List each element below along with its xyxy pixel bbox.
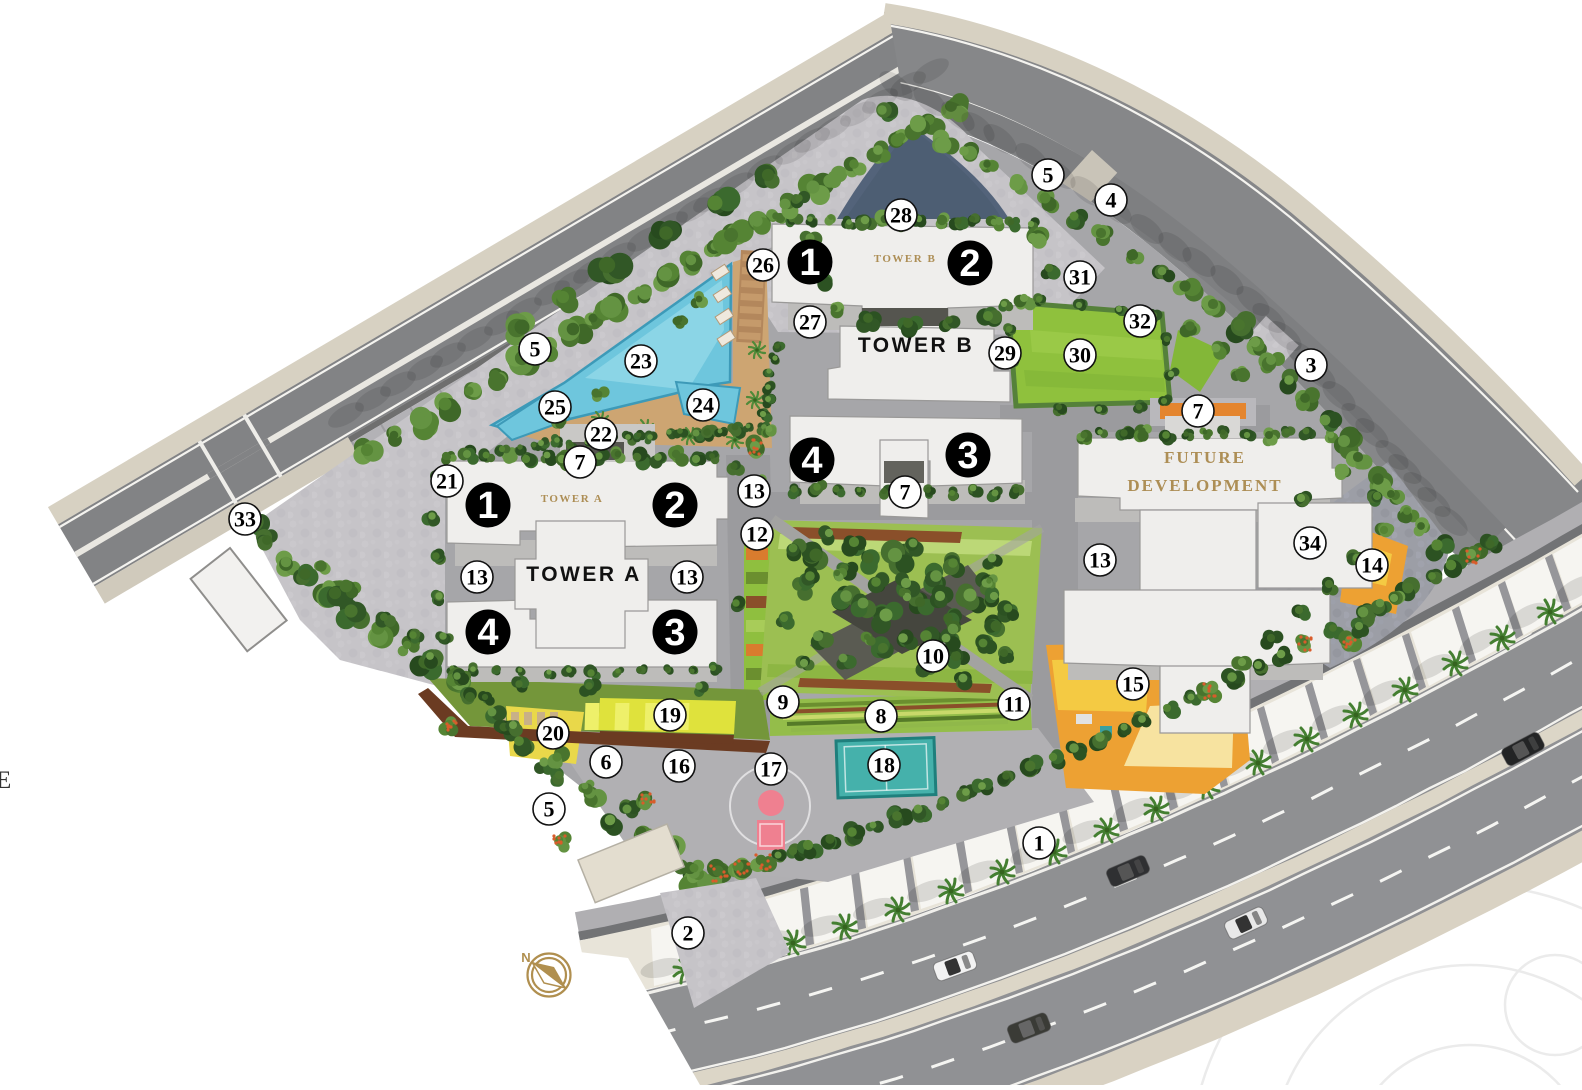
svg-text:17: 17 xyxy=(760,757,782,782)
svg-text:1: 1 xyxy=(477,485,498,527)
svg-text:1: 1 xyxy=(799,242,820,284)
svg-text:14: 14 xyxy=(1361,553,1383,578)
svg-text:4: 4 xyxy=(801,440,822,482)
svg-text:16: 16 xyxy=(668,754,690,779)
svg-text:TOWER B: TOWER B xyxy=(858,334,974,357)
svg-text:7: 7 xyxy=(1193,399,1204,424)
svg-text:TOWER B: TOWER B xyxy=(874,253,937,265)
svg-text:33: 33 xyxy=(234,507,256,532)
svg-text:28: 28 xyxy=(890,203,912,228)
svg-text:11: 11 xyxy=(1004,692,1025,717)
svg-text:18: 18 xyxy=(873,753,895,778)
svg-text:2: 2 xyxy=(959,243,980,285)
svg-text:6: 6 xyxy=(601,750,612,775)
svg-text:30: 30 xyxy=(1069,343,1091,368)
svg-text:29: 29 xyxy=(994,341,1016,366)
svg-text:31: 31 xyxy=(1069,265,1091,290)
svg-text:3: 3 xyxy=(664,612,685,654)
svg-text:32: 32 xyxy=(1129,309,1151,334)
svg-text:FUTURE: FUTURE xyxy=(1164,448,1246,467)
svg-text:24: 24 xyxy=(692,393,714,418)
svg-text:13: 13 xyxy=(466,565,488,590)
svg-text:9: 9 xyxy=(778,690,789,715)
svg-text:E: E xyxy=(0,767,11,794)
svg-text:7: 7 xyxy=(900,480,911,505)
svg-text:5: 5 xyxy=(1043,163,1054,188)
svg-text:23: 23 xyxy=(630,349,652,374)
svg-text:5: 5 xyxy=(544,797,555,822)
svg-text:27: 27 xyxy=(799,310,821,335)
svg-text:N: N xyxy=(521,950,530,965)
svg-text:26: 26 xyxy=(752,253,774,278)
svg-text:12: 12 xyxy=(746,522,768,547)
svg-text:22: 22 xyxy=(590,422,612,447)
svg-text:20: 20 xyxy=(542,721,564,746)
svg-text:13: 13 xyxy=(676,565,698,590)
svg-text:5: 5 xyxy=(530,337,541,362)
svg-text:10: 10 xyxy=(922,644,944,669)
svg-text:13: 13 xyxy=(1089,548,1111,573)
svg-text:1: 1 xyxy=(1034,831,1045,856)
svg-text:34: 34 xyxy=(1299,531,1321,556)
svg-text:19: 19 xyxy=(659,703,681,728)
svg-text:4: 4 xyxy=(477,612,498,654)
svg-text:2: 2 xyxy=(683,921,694,946)
svg-text:2: 2 xyxy=(664,485,685,527)
svg-text:21: 21 xyxy=(436,469,458,494)
svg-text:8: 8 xyxy=(876,704,887,729)
svg-text:4: 4 xyxy=(1106,188,1117,213)
svg-text:DEVELOPMENT: DEVELOPMENT xyxy=(1127,476,1282,495)
svg-text:7: 7 xyxy=(575,450,586,475)
svg-text:TOWER A: TOWER A xyxy=(526,563,642,586)
svg-text:15: 15 xyxy=(1122,672,1144,697)
svg-text:25: 25 xyxy=(544,395,566,420)
svg-text:13: 13 xyxy=(743,479,765,504)
svg-text:3: 3 xyxy=(1306,353,1317,378)
svg-text:3: 3 xyxy=(957,435,978,477)
svg-text:TOWER A: TOWER A xyxy=(541,493,604,505)
